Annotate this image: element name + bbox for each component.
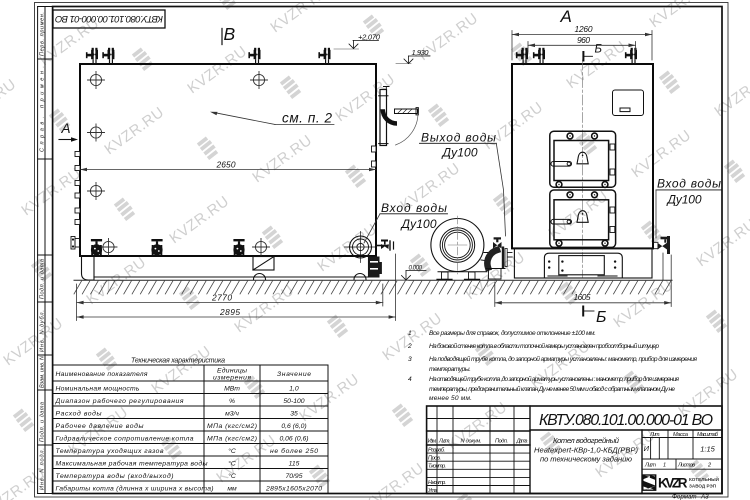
svg-text:Разраб.: Разраб. xyxy=(428,448,445,454)
svg-text:Габариты котла (длинна х ширин: Габариты котла (длинна х ширина х высота… xyxy=(56,485,214,493)
svg-text:+2,070: +2,070 xyxy=(358,33,381,42)
svg-text:Heatexpert-КВр-1,0-КБД(РВР): Heatexpert-КВр-1,0-КБД(РВР) xyxy=(534,446,638,455)
svg-text:ЗАВОД РЭП: ЗАВОД РЭП xyxy=(689,483,716,488)
svg-text:4: 4 xyxy=(408,376,412,383)
svg-text:м3/ч: м3/ч xyxy=(225,411,239,418)
svg-text:Диапазон рабочего регулировани: Диапазон рабочего регулирования xyxy=(55,397,184,405)
svg-text:не более 250: не более 250 xyxy=(270,447,318,455)
svg-text:Инв. N дубл.: Инв. N дубл. xyxy=(40,310,46,352)
svg-text:На подводящей трубе котла, д: На подводящей трубе котла, до запорной а… xyxy=(429,355,697,363)
svg-text:Н.контр.: Н.контр. xyxy=(428,480,446,486)
svg-text:Подп.: Подп. xyxy=(495,439,508,445)
svg-text:Подп. и дата: Подп. и дата xyxy=(40,259,46,299)
svg-text:Единицы: Единицы xyxy=(217,367,247,375)
svg-text:Утв.: Утв. xyxy=(427,488,438,494)
svg-text:температуры.: температуры. xyxy=(429,366,471,373)
svg-text:Значение: Значение xyxy=(277,371,311,378)
svg-text:менее 50 мм.: менее 50 мм. xyxy=(429,395,472,402)
svg-text:Расход воды: Расход воды xyxy=(56,410,102,418)
svg-text:2650: 2650 xyxy=(216,160,236,170)
svg-text:70/95: 70/95 xyxy=(285,473,302,480)
svg-text:Вход воды: Вход воды xyxy=(381,201,447,215)
svg-text:Масса: Масса xyxy=(673,432,688,438)
svg-text:МПа (кгс/см2): МПа (кгс/см2) xyxy=(207,436,257,443)
svg-text:Техническая характеристика: Техническая характеристика xyxy=(131,358,225,365)
svg-text:50-100: 50-100 xyxy=(283,398,304,405)
svg-text:Перв. примен.: Перв. примен. xyxy=(40,12,46,56)
svg-text:Масштаб: Масштаб xyxy=(697,432,719,438)
svg-text:Взам. инв. N: Взам. инв. N xyxy=(40,355,46,388)
svg-text:Т.контр.: Т.контр. xyxy=(428,464,446,470)
svg-text:1: 1 xyxy=(663,463,666,469)
svg-text:МВт: МВт xyxy=(224,386,240,393)
svg-text:Лист: Лист xyxy=(644,463,656,469)
svg-text:0,06 (0,6): 0,06 (0,6) xyxy=(279,436,308,443)
svg-text:КВТУ.080.101.00.000-01 ВО: КВТУ.080.101.00.000-01 ВО xyxy=(539,412,713,429)
svg-text:Температура воды (вход/выход): Температура воды (вход/выход) xyxy=(56,472,174,480)
svg-text:1: 1 xyxy=(408,330,412,337)
svg-text:КВТУ.080.101.00.000-01 ВО: КВТУ.080.101.00.000-01 ВО xyxy=(54,13,163,24)
svg-text:Рабочее давление воды: Рабочее давление воды xyxy=(56,422,144,430)
svg-text:Ду100: Ду100 xyxy=(400,217,437,231)
svg-text:Котел водогрейный: Котел водогрейный xyxy=(553,436,620,445)
svg-text:0,6 (6,0): 0,6 (6,0) xyxy=(281,423,306,430)
svg-text:Гидравлическое сопротивление к: Гидравлическое сопротивление котла xyxy=(56,435,194,443)
svg-text:2895х1605х2070: 2895х1605х2070 xyxy=(265,486,322,493)
svg-text:2770: 2770 xyxy=(211,293,232,303)
svg-text:Листов: Листов xyxy=(677,463,695,469)
svg-text:Температура уходящих газов: Температура уходящих газов xyxy=(56,447,164,455)
svg-text:Все размеры для справок, допус: Все размеры для справок, допустимое откл… xyxy=(429,329,596,337)
svg-text:1260: 1260 xyxy=(575,24,593,34)
svg-text:На боковой стенке котла в обла: На боковой стенке котла в области топочн… xyxy=(429,342,659,350)
svg-text:Вход воды: Вход воды xyxy=(657,177,721,191)
svg-text:Изм.: Изм. xyxy=(428,439,437,445)
svg-text:Дата: Дата xyxy=(516,439,528,445)
svg-text:мм: мм xyxy=(227,486,237,493)
svg-text:по техническому заданию: по техническому заданию xyxy=(540,455,632,464)
svg-text:1,0: 1,0 xyxy=(289,386,299,393)
svg-text:И: И xyxy=(644,444,650,453)
svg-text:35: 35 xyxy=(290,411,298,418)
svg-text:1605: 1605 xyxy=(574,292,591,302)
svg-text:На отводящей трубе котла ,до з: На отводящей трубе котла ,до запорной ар… xyxy=(429,375,679,383)
svg-text:2: 2 xyxy=(707,463,712,469)
svg-text:°С: °С xyxy=(228,472,236,480)
svg-text:1,930: 1,930 xyxy=(412,48,430,57)
svg-text:°С: °С xyxy=(228,460,236,468)
svg-text:В: В xyxy=(224,24,236,44)
svg-text:А: А xyxy=(560,7,572,26)
svg-text:KVZR: KVZR xyxy=(658,476,688,491)
svg-text:Номинальная мощность: Номинальная мощность xyxy=(56,386,140,393)
svg-text:Б: Б xyxy=(595,44,603,56)
svg-text:2: 2 xyxy=(407,343,412,350)
svg-text:%: % xyxy=(229,398,235,405)
svg-text:Ду100: Ду100 xyxy=(666,193,702,207)
svg-text:температуры, предохранительный: температуры, предохранительный клапан Ду… xyxy=(429,385,675,393)
svg-text:115: 115 xyxy=(289,461,300,468)
svg-text:0.000: 0.000 xyxy=(409,264,423,271)
svg-text:см. п. 2: см. п. 2 xyxy=(282,111,332,126)
svg-text:МПа (кгс/см2): МПа (кгс/см2) xyxy=(207,423,257,430)
svg-text:Б: Б xyxy=(596,309,606,326)
svg-text:3: 3 xyxy=(408,356,412,363)
svg-text:Формат: Формат xyxy=(672,494,697,500)
svg-text:А: А xyxy=(61,121,71,136)
svg-text:Пров.: Пров. xyxy=(428,456,441,462)
svg-text:КОТЕЛЬНЫЙ: КОТЕЛЬНЫЙ xyxy=(689,475,719,482)
svg-text:1:15: 1:15 xyxy=(700,445,715,454)
svg-text:Лист: Лист xyxy=(438,439,450,445)
svg-text:Лит.: Лит. xyxy=(649,432,660,438)
svg-text:N докум.: N докум. xyxy=(461,439,482,445)
svg-text:Ду100: Ду100 xyxy=(441,146,478,160)
svg-text:°С: °С xyxy=(228,447,236,455)
svg-text:измерения: измерения xyxy=(213,375,251,382)
svg-text:А3: А3 xyxy=(700,494,709,500)
svg-text:Выход воды: Выход воды xyxy=(421,131,496,145)
svg-text:960: 960 xyxy=(577,35,590,45)
svg-text:Максимальная рабочая температу: Максимальная рабочая температура воды xyxy=(56,460,208,468)
svg-text:Наименование показателя: Наименование показателя xyxy=(56,371,148,378)
svg-text:Подп. и дата: Подп. и дата xyxy=(40,402,46,442)
svg-text:2895: 2895 xyxy=(219,307,240,317)
svg-text:Инв. N подл.: Инв. N подл. xyxy=(40,448,46,490)
